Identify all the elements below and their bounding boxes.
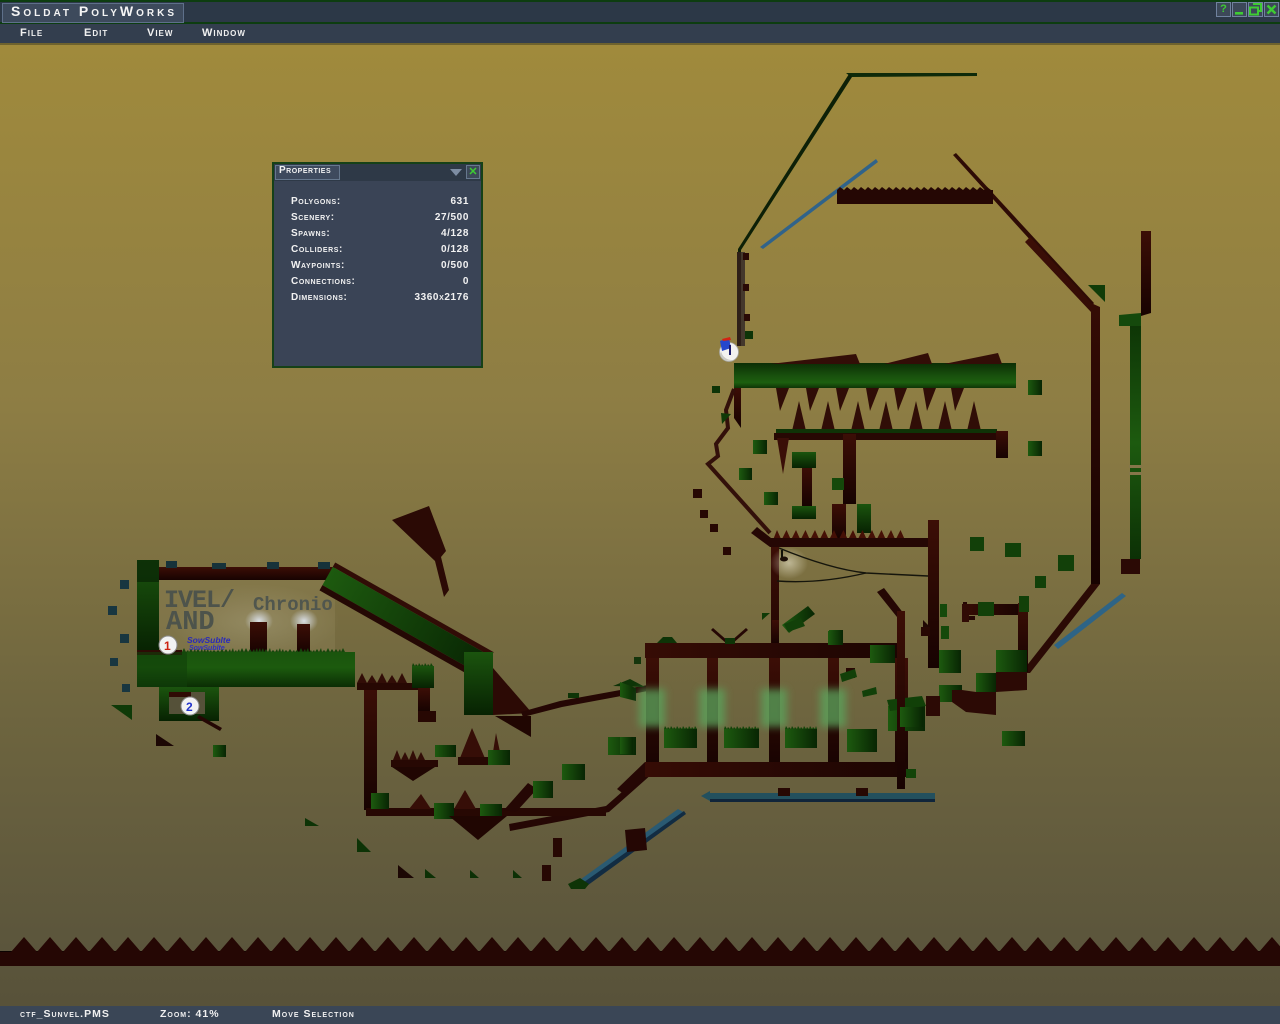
svg-text:SowSublte: SowSublte <box>187 635 231 645</box>
svg-text:1: 1 <box>164 639 171 653</box>
svg-text:2: 2 <box>186 700 193 714</box>
svg-text:AND: AND <box>166 608 215 638</box>
